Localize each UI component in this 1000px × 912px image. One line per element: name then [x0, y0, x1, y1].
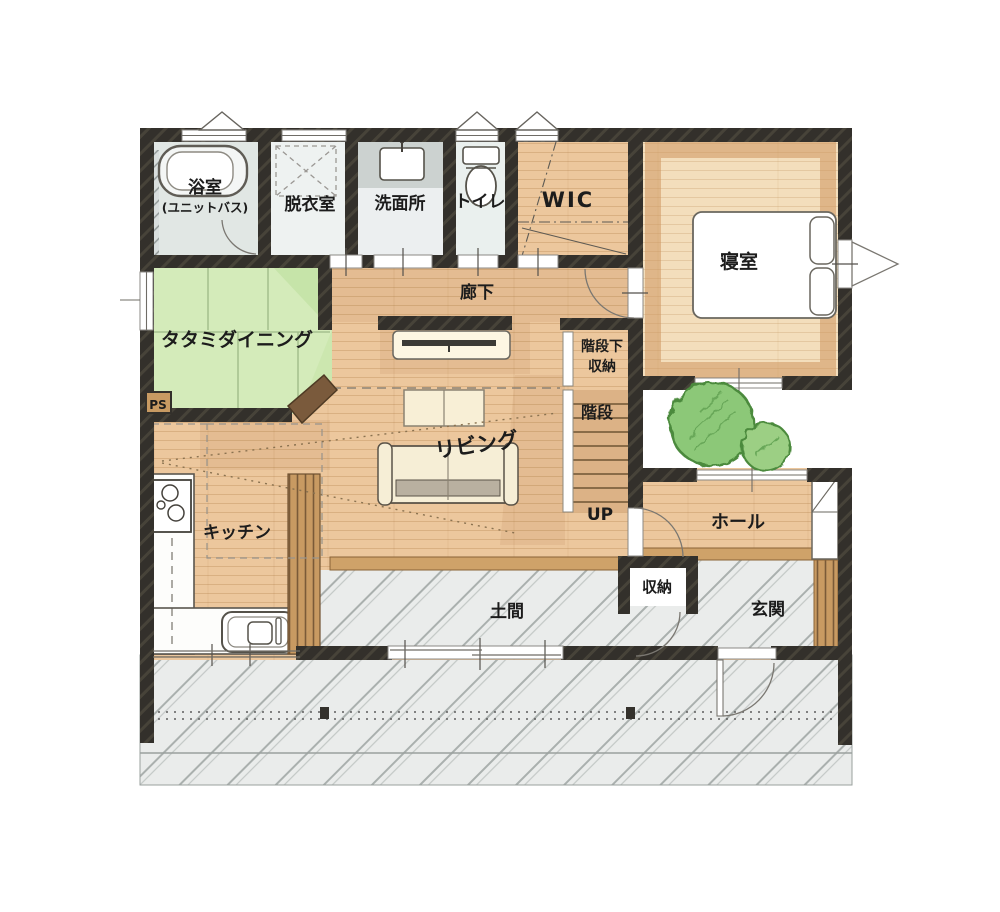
label-pipe-space: PS [149, 398, 166, 412]
label-entrance: 玄関 [751, 599, 785, 620]
kitchen-sink [222, 612, 294, 652]
bed [693, 212, 836, 318]
label-kitchen: キッチン [203, 523, 271, 543]
terrace-post [320, 707, 329, 719]
label-doma: 土間 [490, 601, 524, 622]
label-tatami-dining: タタミダイニング [161, 328, 313, 351]
label-under-stairs-2: 収納 [588, 358, 616, 375]
terrace [140, 655, 852, 785]
floor-plan-drawing: 浴室 (ユニットバス) 脱衣室 洗面所 トイレ WIC 寝室 タタミダイニング … [0, 0, 1000, 912]
label-toilet: トイレ [455, 192, 506, 212]
label-washroom: 洗面所 [375, 193, 426, 214]
label-hall: ホール [711, 512, 765, 533]
label-bedroom: 寝室 [720, 250, 758, 273]
label-bath-sub: (ユニットバス) [162, 200, 248, 215]
vanity-sink [357, 139, 445, 188]
kitchen-slat-partition [288, 474, 320, 654]
label-bath: 浴室 [188, 177, 222, 198]
living-table [404, 390, 484, 426]
entrance-door-leaf [717, 660, 723, 716]
shoe-cabinet [812, 475, 838, 559]
label-storage: 収納 [642, 578, 672, 596]
bedroom-door-swing [852, 242, 898, 286]
label-wic: WIC [542, 188, 594, 212]
terrace-post [626, 707, 635, 719]
stove [153, 480, 191, 532]
floor-plan: 浴室 (ユニットバス) 脱衣室 洗面所 トイレ WIC 寝室 タタミダイニング … [0, 0, 1000, 912]
tv-board [393, 331, 510, 359]
label-dressing-room: 脱衣室 [285, 194, 336, 215]
entrance-wood-deck [814, 560, 838, 648]
under-stairs-storage-door [563, 332, 573, 386]
label-corridor: 廊下 [460, 282, 494, 303]
doma-step-edge [330, 557, 622, 570]
label-under-stairs-1: 階段下 [581, 338, 623, 355]
label-up: UP [587, 505, 613, 525]
label-stairs: 階段 [581, 403, 614, 422]
